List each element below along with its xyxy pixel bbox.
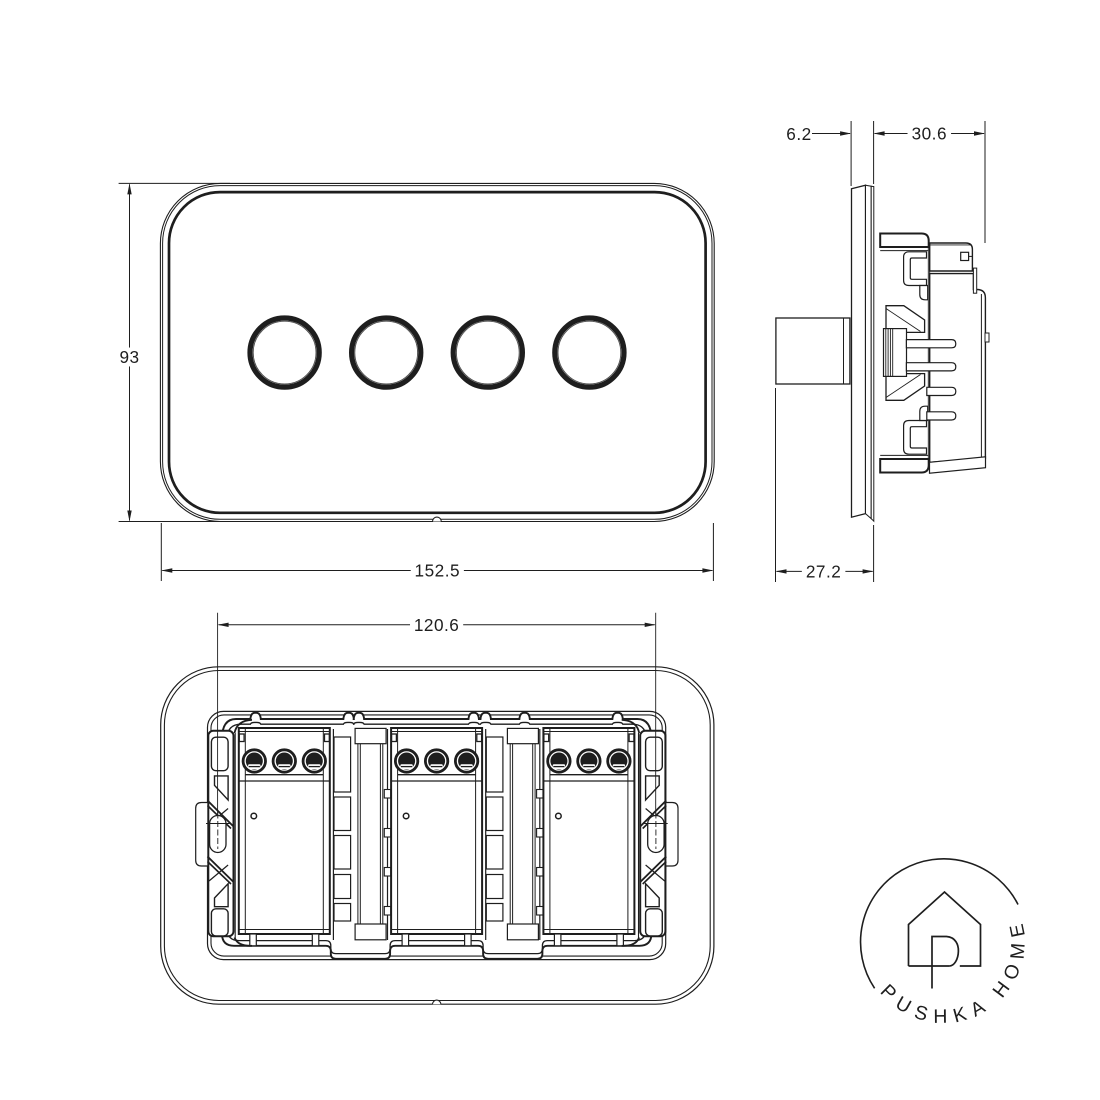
svg-text:PUSHKA HOME: PUSHKA HOME xyxy=(876,915,1030,1028)
svg-text:27.2: 27.2 xyxy=(806,562,841,582)
svg-text:93: 93 xyxy=(119,347,139,367)
svg-text:6.2: 6.2 xyxy=(786,124,811,144)
svg-text:120.6: 120.6 xyxy=(414,615,460,635)
svg-text:30.6: 30.6 xyxy=(912,124,947,144)
svg-text:152.5: 152.5 xyxy=(415,561,461,581)
